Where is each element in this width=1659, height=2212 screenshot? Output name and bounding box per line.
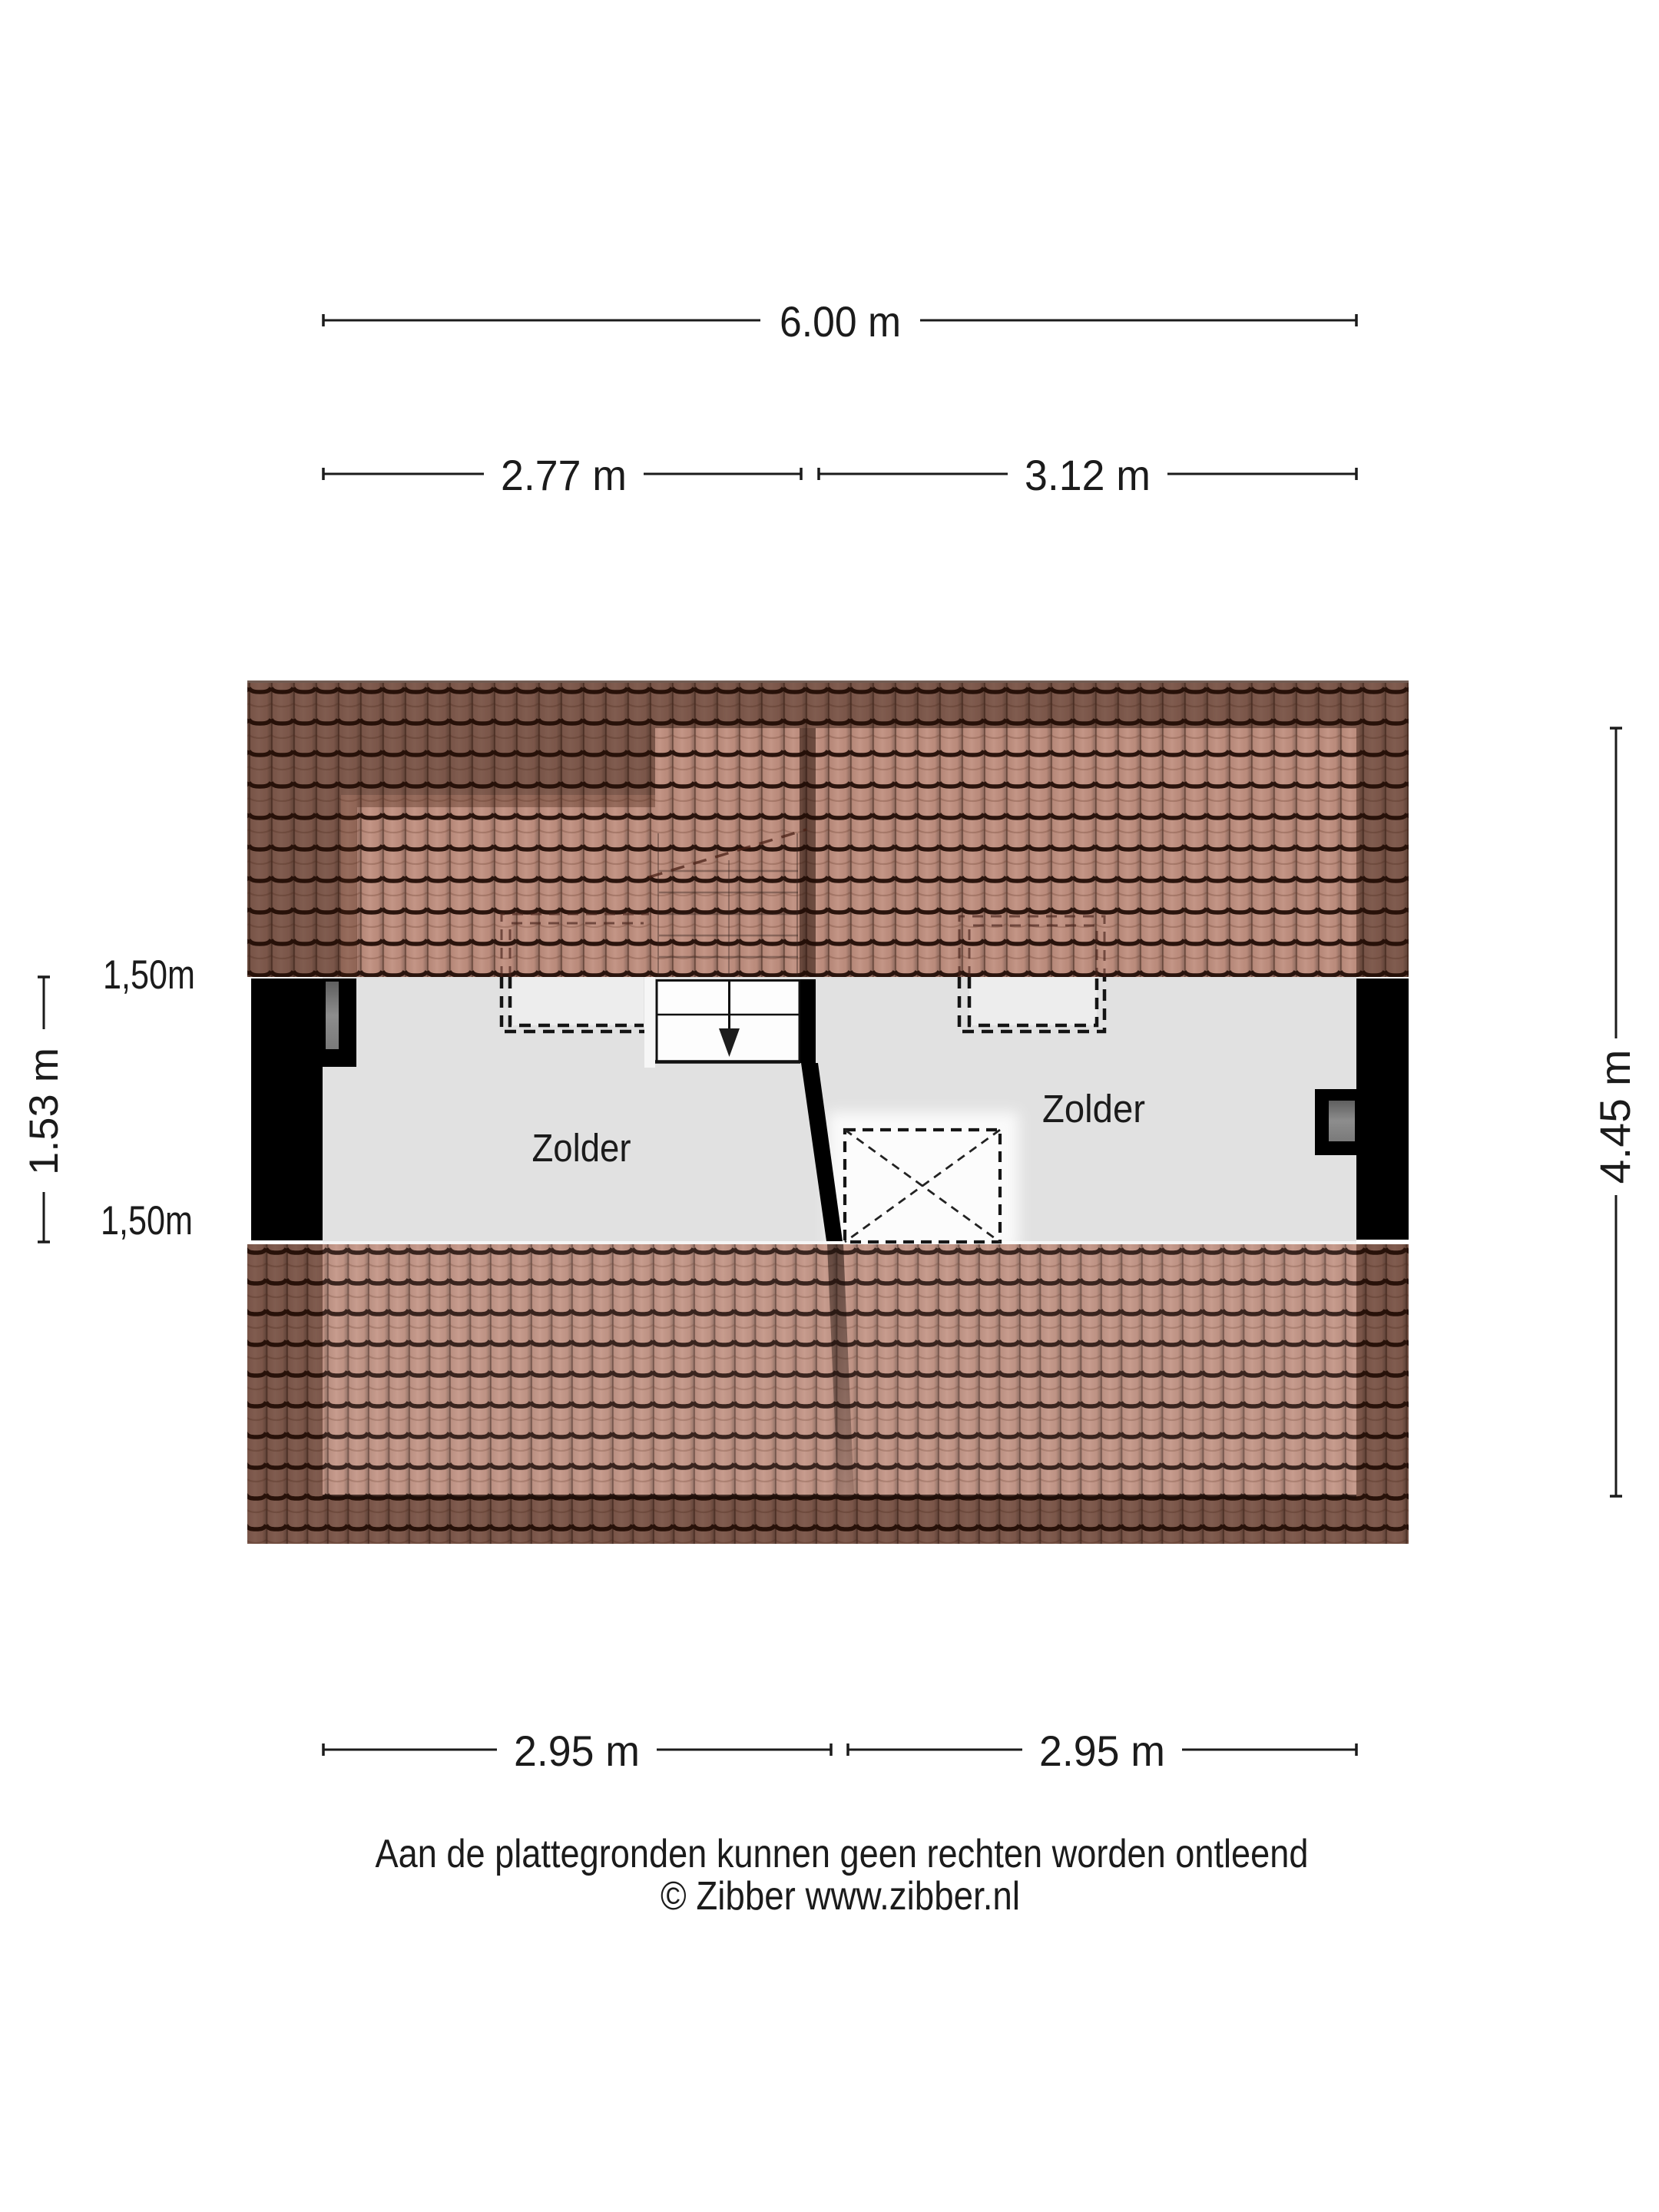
svg-text:Zolder: Zolder (532, 1126, 631, 1170)
svg-text:2.77 m: 2.77 m (501, 451, 627, 499)
svg-text:3.12 m: 3.12 m (1025, 451, 1151, 499)
svg-text:4.45 m: 4.45 m (1591, 1050, 1639, 1184)
svg-text:2.95 m: 2.95 m (514, 1727, 640, 1775)
svg-text:Aan de plattegronden kunnen ge: Aan de plattegronden kunnen geen rechten… (376, 1832, 1309, 1876)
svg-text:6.00 m: 6.00 m (780, 297, 901, 346)
svg-text:1.53 m: 1.53 m (22, 1048, 67, 1175)
svg-text:1,50m: 1,50m (103, 952, 195, 998)
svg-text:2.95 m: 2.95 m (1039, 1727, 1165, 1775)
svg-text:Zolder: Zolder (1042, 1087, 1145, 1131)
svg-text:1,50m: 1,50m (101, 1198, 193, 1243)
svg-text:© Zibber www.zibber.nl: © Zibber www.zibber.nl (661, 1874, 1020, 1919)
